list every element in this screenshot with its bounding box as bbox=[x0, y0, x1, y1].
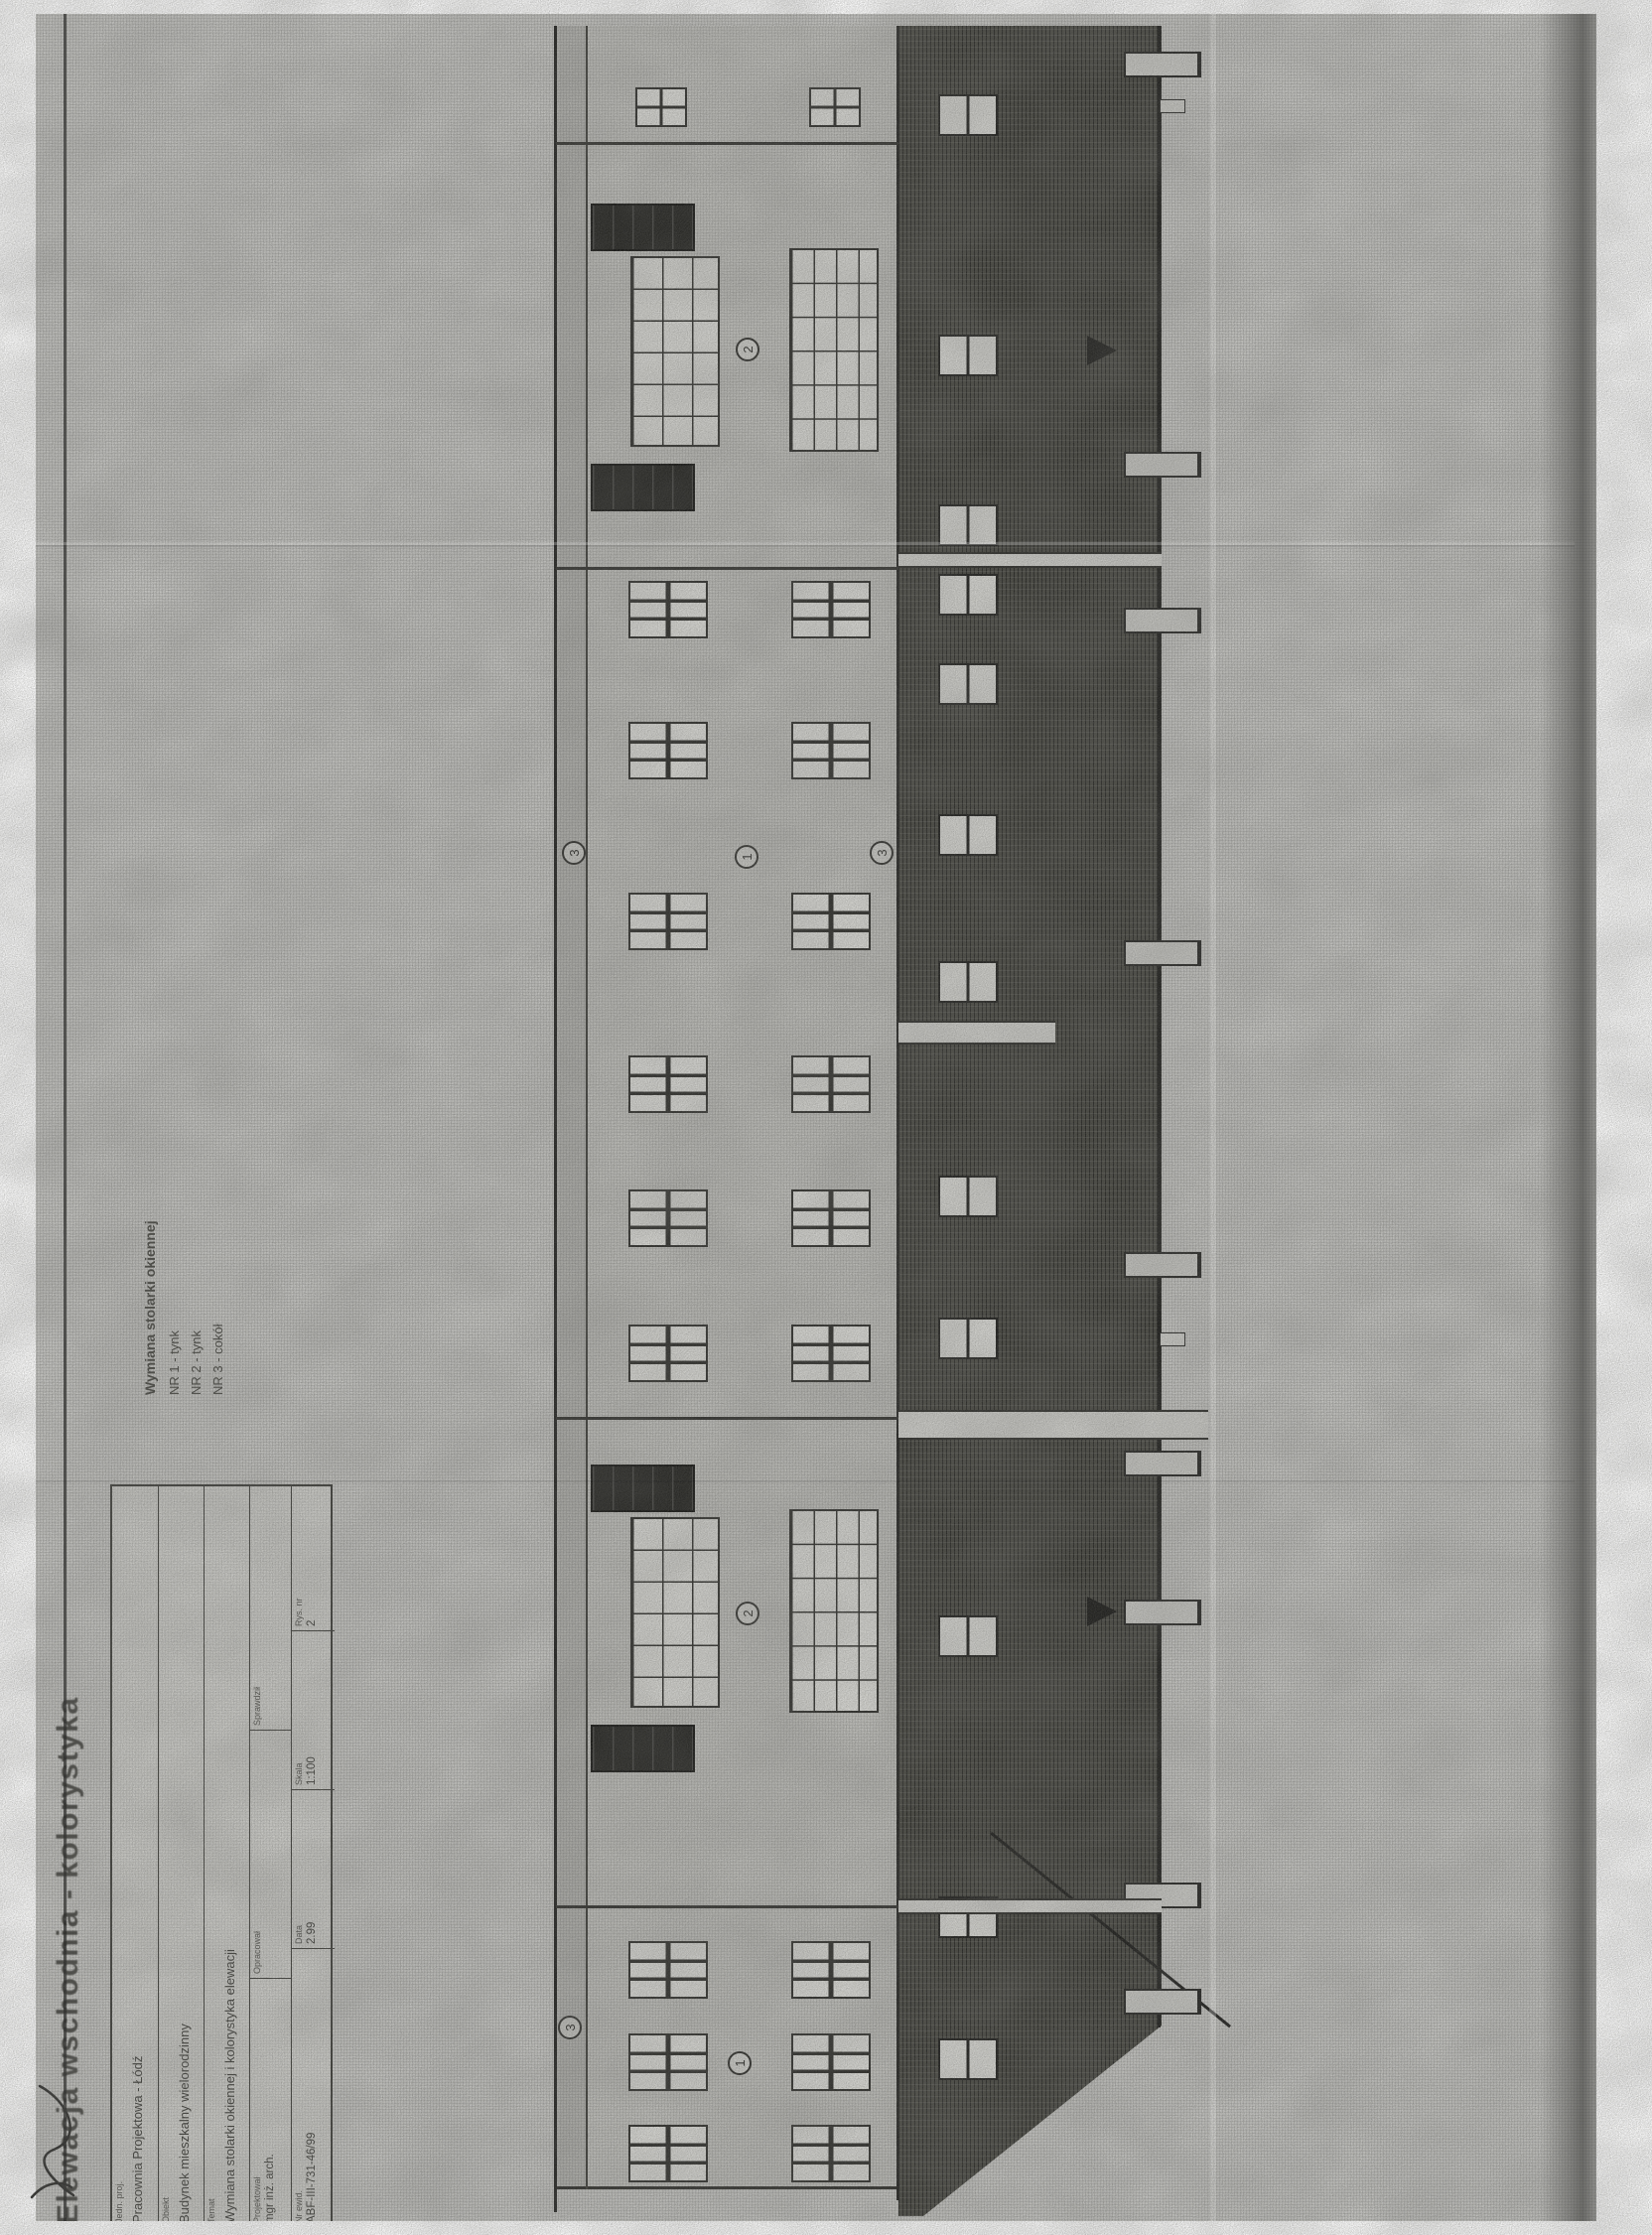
sheet-value: 2 bbox=[306, 1486, 318, 1626]
facade-window bbox=[791, 1055, 871, 1113]
section-division-line bbox=[556, 567, 898, 570]
left-margin bbox=[0, 0, 36, 2235]
firewall-band bbox=[898, 552, 1162, 568]
chimney bbox=[1124, 608, 1201, 633]
chimney bbox=[1124, 1989, 1201, 2015]
page-edge-line bbox=[64, 14, 67, 2221]
stairwell-glazing bbox=[630, 256, 720, 447]
title-block-row: Temat Wymiana stolarki okiennej i kolory… bbox=[204, 1486, 249, 2227]
color-axis-marker: 2 bbox=[736, 338, 759, 361]
facade-window bbox=[628, 1325, 708, 1382]
subject-cell: Temat Wymiana stolarki okiennej i kolory… bbox=[205, 1486, 249, 2227]
roof-dormer-window bbox=[938, 94, 998, 136]
section-division-line bbox=[556, 142, 898, 145]
page-edge-shadow bbox=[1541, 14, 1596, 2221]
stairwell-glazing bbox=[789, 248, 879, 452]
chimney bbox=[1124, 940, 1201, 966]
bottom-margin bbox=[0, 2221, 1652, 2235]
roof-dormer-window bbox=[938, 1318, 998, 1359]
designer-value: mgr inż. arch. bbox=[264, 1983, 276, 2223]
chimney bbox=[1124, 1600, 1201, 1625]
stairwell-glazing bbox=[630, 1517, 720, 1708]
roof-dormer-window bbox=[938, 2038, 998, 2080]
facade-window bbox=[628, 1055, 708, 1113]
title-block-row: Nr ewid. ABF-III-731-46/99 Data 2.99 Ska… bbox=[291, 1486, 335, 2227]
top-margin bbox=[0, 0, 1652, 14]
facade-window bbox=[791, 1189, 871, 1247]
drafter-cell: Opracował bbox=[250, 1731, 291, 1979]
facade-window bbox=[791, 1941, 871, 1999]
dark-accent-window bbox=[591, 1465, 695, 1512]
unit-cell: Jedn. proj. Pracownia Projektowa - Łódź bbox=[112, 1486, 158, 2227]
attic-window bbox=[809, 87, 861, 127]
sheet-cell: Rys. nr 2 bbox=[292, 1482, 335, 1631]
chimney bbox=[1124, 52, 1201, 77]
dark-accent-window bbox=[591, 1725, 695, 1772]
roof-dormer-window bbox=[938, 1615, 998, 1657]
designer-label: Projektował bbox=[252, 2176, 262, 2223]
section-division-line bbox=[556, 1417, 898, 1420]
date-value: 2.99 bbox=[306, 1794, 318, 1944]
color-axis-marker: 3 bbox=[562, 841, 586, 865]
legend-item: NR 1 - tynk bbox=[167, 1038, 182, 1395]
color-axis-marker: 1 bbox=[728, 2051, 752, 2075]
facade-window bbox=[628, 1189, 708, 1247]
subject-value: Wymiana stolarki okiennej i kolorystyka … bbox=[222, 1490, 237, 2223]
roof-dormer-window bbox=[938, 504, 998, 546]
checker-label: Sprawdził bbox=[252, 1687, 262, 1726]
object-label: Obiekt bbox=[161, 2197, 171, 2223]
facade-window bbox=[628, 581, 708, 638]
object-cell: Obiekt Budynek mieszkalny wielorodzinny bbox=[159, 1486, 204, 2227]
date-label: Data bbox=[294, 1925, 304, 1944]
chimney bbox=[1124, 1252, 1201, 1278]
legend-heading: Wymiana stolarki okiennej bbox=[142, 1038, 158, 1395]
roof-hatch-arrow bbox=[1087, 336, 1117, 365]
fold-crease-horizontal bbox=[36, 545, 1575, 547]
unit-value: Pracownia Projektowa - Łódź bbox=[130, 1490, 145, 2223]
dark-accent-window bbox=[591, 464, 695, 511]
unit-label: Jedn. proj. bbox=[114, 2181, 124, 2223]
legend-block: Wymiana stolarki okiennej NR 1 - tynk NR… bbox=[142, 1038, 259, 1395]
drafter-label: Opracował bbox=[252, 1931, 262, 1974]
facade-window bbox=[791, 581, 871, 638]
handwritten-mark bbox=[26, 2080, 95, 2204]
legend-item: NR 2 - tynk bbox=[189, 1038, 204, 1395]
facade-window bbox=[791, 1325, 871, 1382]
scale-value: 1:100 bbox=[306, 1635, 318, 1785]
attic-window bbox=[635, 87, 687, 127]
chimney bbox=[1124, 1451, 1201, 1476]
color-axis-marker: 3 bbox=[870, 841, 894, 865]
checker-cell: Sprawdził bbox=[250, 1482, 291, 1731]
title-block-row: Obiekt Budynek mieszkalny wielorodzinny bbox=[158, 1486, 204, 2227]
legend-item: NR 3 - cokół bbox=[210, 1038, 225, 1395]
title-block: Jedn. proj. Pracownia Projektowa - Łódź … bbox=[110, 1484, 333, 2229]
scale-cell: Skala 1:100 bbox=[292, 1631, 335, 1790]
plinth-line bbox=[586, 26, 588, 2189]
roof-dormer-window bbox=[938, 814, 998, 856]
ref-value: ABF-III-731-46/99 bbox=[306, 1953, 318, 2223]
subject-label: Temat bbox=[206, 2198, 216, 2223]
stairwell-glazing bbox=[789, 1509, 879, 1713]
title-block-row: Jedn. proj. Pracownia Projektowa - Łódź bbox=[112, 1486, 158, 2227]
roof-dormer-window bbox=[938, 1176, 998, 1217]
plinth-strip bbox=[558, 26, 586, 2189]
facade-window bbox=[791, 893, 871, 950]
scanned-drawing-page: 2313231 Elewacja wschodnia - kolorystyka… bbox=[0, 0, 1652, 2235]
facade-window bbox=[628, 893, 708, 950]
roof-dormer-window bbox=[938, 663, 998, 705]
roof-vent bbox=[1160, 99, 1185, 113]
roof-hatch-arrow bbox=[1087, 1597, 1117, 1626]
right-margin bbox=[1596, 0, 1652, 2235]
ref-label: Nr ewid. bbox=[294, 2190, 304, 2223]
color-axis-marker: 3 bbox=[558, 2016, 582, 2039]
date-cell: Data 2.99 bbox=[292, 1790, 335, 1949]
firewall-band bbox=[898, 1021, 1055, 1045]
roof-vent bbox=[1160, 1332, 1185, 1346]
facade-window bbox=[628, 2033, 708, 2091]
ground-line bbox=[554, 26, 557, 2212]
dark-accent-window bbox=[591, 204, 695, 251]
object-value: Budynek mieszkalny wielorodzinny bbox=[177, 1490, 192, 2223]
facade-window bbox=[791, 2033, 871, 2091]
scale-label: Skala bbox=[294, 1762, 304, 1785]
color-axis-marker: 1 bbox=[735, 845, 758, 869]
roof-dormer-window bbox=[938, 961, 998, 1003]
firewall-band bbox=[898, 1898, 1162, 1914]
chimney bbox=[1124, 452, 1201, 478]
title-block-row: Projektował mgr inż. arch. Opracował Spr… bbox=[249, 1486, 291, 2227]
eaves-line bbox=[896, 26, 899, 2200]
facade-window bbox=[628, 722, 708, 779]
roof-dormer-window bbox=[938, 574, 998, 616]
facade-window bbox=[791, 722, 871, 779]
firewall-band bbox=[898, 1410, 1208, 1440]
facade-window bbox=[791, 2125, 871, 2182]
fold-crease-horizontal bbox=[36, 1480, 1575, 1482]
color-axis-marker: 2 bbox=[736, 1602, 759, 1625]
sheet-label: Rys. nr bbox=[294, 1598, 304, 1626]
facade-window bbox=[628, 2125, 708, 2182]
facade-window bbox=[628, 1941, 708, 1999]
section-division-line bbox=[556, 1905, 898, 1908]
ref-cell: Nr ewid. ABF-III-731-46/99 bbox=[292, 1949, 335, 2227]
roof-dormer-window bbox=[938, 335, 998, 376]
fold-crease-vertical bbox=[1209, 14, 1216, 2221]
ridge-line bbox=[1158, 26, 1161, 2027]
designer-cell: Projektował mgr inż. arch. bbox=[250, 1979, 291, 2227]
